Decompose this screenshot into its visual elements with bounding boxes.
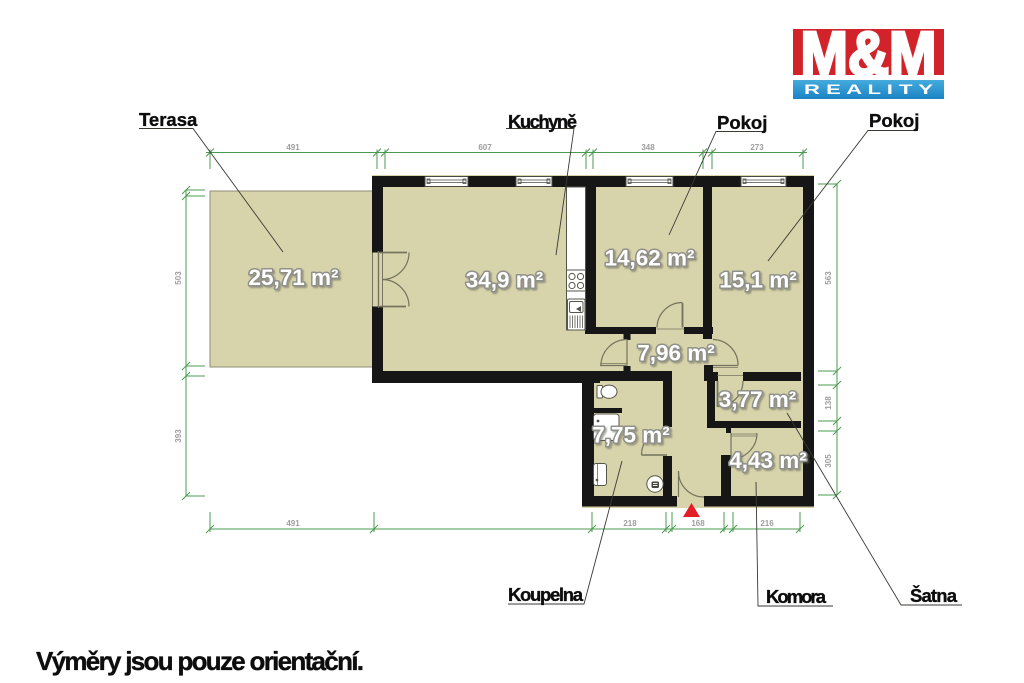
svg-text:Výměry jsou pouze orientační.: Výměry jsou pouze orientační. — [36, 646, 364, 676]
svg-text:14,62 m²: 14,62 m² — [604, 246, 695, 271]
svg-text:607: 607 — [478, 143, 492, 152]
svg-text:M&M: M&M — [801, 20, 937, 89]
svg-text:273: 273 — [750, 143, 764, 152]
svg-text:218: 218 — [623, 519, 637, 528]
svg-text:Pokoj: Pokoj — [717, 112, 767, 133]
svg-text:R E A L I T Y: R E A L I T Y — [804, 81, 934, 97]
svg-text:138: 138 — [824, 396, 833, 410]
svg-text:491: 491 — [286, 143, 300, 152]
svg-text:Pokoj: Pokoj — [869, 110, 919, 131]
svg-text:393: 393 — [174, 429, 183, 443]
svg-text:Koupelna: Koupelna — [508, 584, 584, 605]
svg-text:25,71 m²: 25,71 m² — [248, 265, 339, 290]
svg-text:503: 503 — [174, 271, 183, 285]
svg-text:Terasa: Terasa — [139, 109, 198, 130]
svg-text:Komora: Komora — [766, 586, 827, 607]
svg-text:34,9 m²: 34,9 m² — [466, 268, 544, 293]
svg-text:305: 305 — [824, 454, 833, 468]
svg-text:4,43 m²: 4,43 m² — [729, 448, 807, 473]
svg-text:15,1 m²: 15,1 m² — [719, 268, 797, 293]
svg-text:Kuchyně: Kuchyně — [508, 111, 577, 132]
svg-text:7,96 m²: 7,96 m² — [637, 341, 715, 366]
svg-text:216: 216 — [760, 519, 774, 528]
svg-text:7,75 m²: 7,75 m² — [592, 423, 670, 448]
svg-text:Šatna: Šatna — [910, 585, 958, 606]
svg-text:3,77 m²: 3,77 m² — [719, 387, 797, 412]
svg-text:348: 348 — [641, 143, 655, 152]
svg-text:563: 563 — [824, 271, 833, 285]
svg-text:491: 491 — [286, 519, 300, 528]
svg-text:168: 168 — [691, 519, 705, 528]
